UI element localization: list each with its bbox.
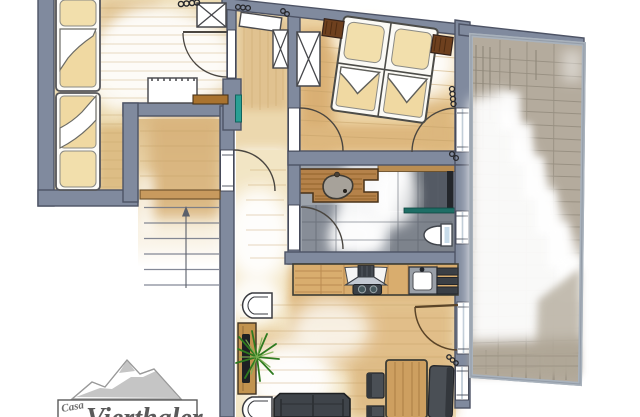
svg-text:Vierthaler: Vierthaler (86, 403, 204, 417)
